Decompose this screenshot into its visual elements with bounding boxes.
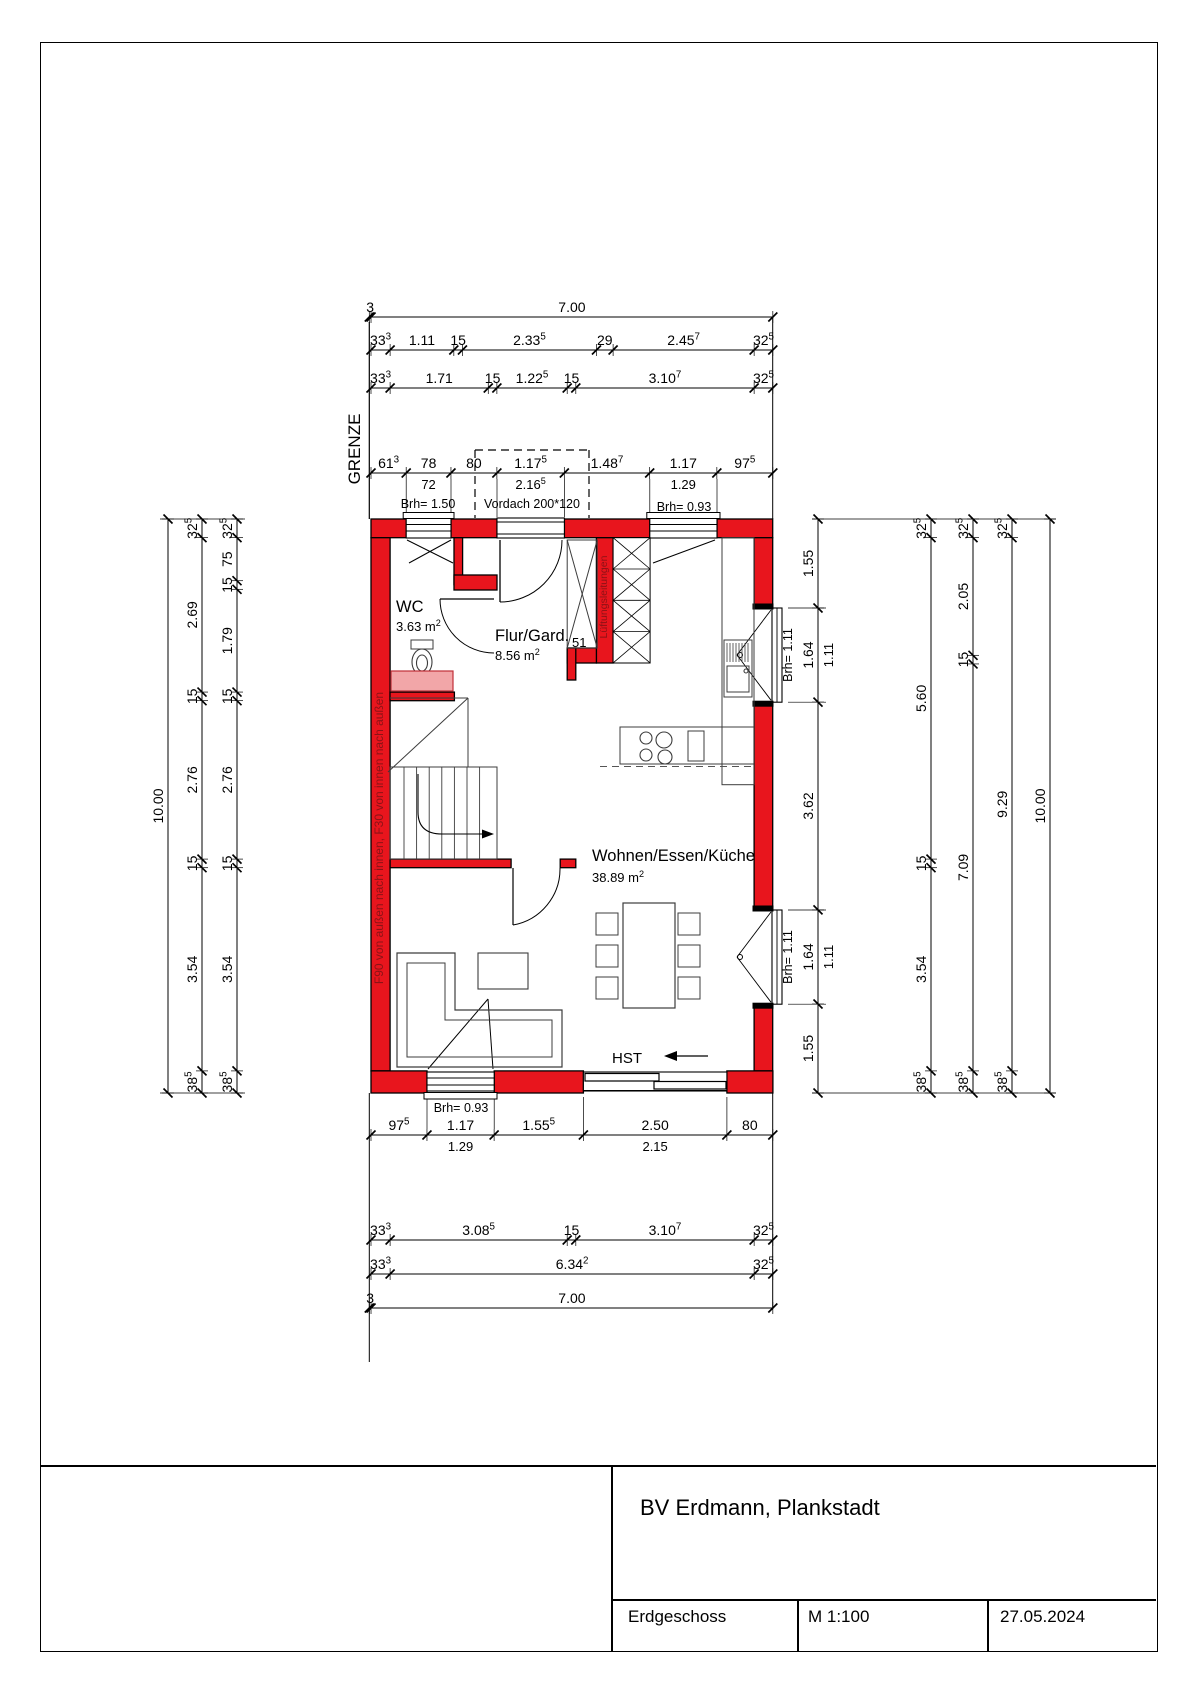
room-label-wohnen: Wohnen/Essen/Küche bbox=[592, 847, 755, 865]
dimension-chain-R4: 3259.29385 bbox=[994, 515, 1018, 1098]
svg-text:15: 15 bbox=[955, 652, 971, 668]
svg-text:385: 385 bbox=[994, 1071, 1010, 1093]
svg-text:3.107: 3.107 bbox=[649, 370, 682, 386]
svg-text:3.54: 3.54 bbox=[913, 955, 929, 982]
svg-text:325: 325 bbox=[184, 517, 200, 539]
svg-text:325: 325 bbox=[753, 332, 775, 348]
svg-text:975: 975 bbox=[734, 455, 756, 471]
room-area-wc: 3.63 m2 bbox=[396, 618, 441, 634]
svg-text:7.00: 7.00 bbox=[558, 1290, 585, 1306]
fire-rating-note: F90 von außen nach innen, F30 von innen … bbox=[372, 692, 386, 984]
title-block-cell-divider-1 bbox=[797, 1599, 799, 1652]
svg-text:385: 385 bbox=[184, 1071, 200, 1093]
svg-text:333: 333 bbox=[370, 1256, 392, 1272]
title-block-top-line bbox=[40, 1465, 1156, 1467]
svg-text:75: 75 bbox=[219, 551, 235, 567]
sill-height-bottom-window: Brh= 0.93 bbox=[434, 1101, 489, 1115]
svg-text:2.15: 2.15 bbox=[642, 1139, 667, 1154]
svg-text:3.54: 3.54 bbox=[219, 955, 235, 982]
svg-text:15: 15 bbox=[219, 577, 235, 593]
svg-text:15: 15 bbox=[450, 332, 466, 348]
svg-text:7.09: 7.09 bbox=[955, 854, 971, 881]
svg-text:1.55: 1.55 bbox=[800, 1035, 816, 1062]
duct-note: Lüftungsleitungen bbox=[598, 555, 610, 638]
svg-text:15: 15 bbox=[219, 688, 235, 704]
svg-text:1.487: 1.487 bbox=[591, 455, 624, 471]
room-label-flur: Flur/Gard. bbox=[495, 627, 569, 645]
svg-text:1.225: 1.225 bbox=[516, 370, 549, 386]
svg-text:3.107: 3.107 bbox=[649, 1222, 682, 1238]
svg-text:1.64: 1.64 bbox=[800, 943, 816, 970]
svg-text:2.05: 2.05 bbox=[955, 583, 971, 610]
svg-text:1.555: 1.555 bbox=[522, 1117, 555, 1133]
dimension-chain-T3: 3331.71151.225153.107325 bbox=[367, 370, 778, 394]
svg-text:333: 333 bbox=[370, 1222, 392, 1238]
svg-text:10.00: 10.00 bbox=[1032, 788, 1048, 823]
room-area-wohnen: 38.89 m2 bbox=[592, 869, 644, 885]
svg-text:1.17: 1.17 bbox=[670, 455, 697, 471]
svg-text:72: 72 bbox=[421, 477, 435, 492]
walls bbox=[371, 519, 773, 1093]
svg-text:975: 975 bbox=[388, 1117, 410, 1133]
dimension-chain-L3: 32575151.79152.76153.54385 bbox=[219, 515, 243, 1098]
room-area-flur: 8.56 m2 bbox=[495, 647, 540, 663]
drawing-scale: M 1:100 bbox=[808, 1607, 869, 1627]
svg-text:5.60: 5.60 bbox=[913, 685, 929, 712]
svg-text:1.79: 1.79 bbox=[219, 627, 235, 654]
sill-height-kitchen-window: Brh= 0.93 bbox=[657, 500, 712, 514]
sill-height-right-lower-window: Brh= 1.11 bbox=[781, 930, 795, 984]
canopy-label: Vordach 200*120 bbox=[484, 497, 580, 511]
svg-text:385: 385 bbox=[955, 1071, 971, 1093]
dimension-chain-T4: 6137872801.1752.1651.4871.171.29975 bbox=[367, 455, 778, 492]
svg-text:1.55: 1.55 bbox=[800, 550, 816, 577]
drawing-date: 27.05.2024 bbox=[1000, 1607, 1085, 1627]
svg-text:15: 15 bbox=[219, 855, 235, 871]
dimension-chain-L1: 10.00 bbox=[150, 515, 174, 1098]
hst-label: HST bbox=[612, 1050, 642, 1067]
floor-plan-drawing: 37.003331.11152.335292.4573253331.71151.… bbox=[0, 0, 1201, 1700]
svg-text:3: 3 bbox=[366, 299, 374, 315]
dimension-chain-B1: 9751.171.291.5552.502.1580 bbox=[367, 1117, 778, 1154]
svg-text:325: 325 bbox=[753, 1256, 775, 1272]
svg-text:80: 80 bbox=[466, 455, 482, 471]
svg-text:1.71: 1.71 bbox=[426, 370, 453, 386]
sheet-name: Erdgeschoss bbox=[628, 1607, 726, 1627]
svg-text:1.11: 1.11 bbox=[821, 945, 836, 969]
svg-text:333: 333 bbox=[370, 332, 392, 348]
svg-text:325: 325 bbox=[753, 370, 775, 386]
svg-text:2.165: 2.165 bbox=[515, 476, 545, 492]
svg-text:385: 385 bbox=[219, 1071, 235, 1093]
dimension-chain-R3: 3252.05157.09385 bbox=[955, 515, 979, 1098]
svg-text:6.342: 6.342 bbox=[556, 1256, 589, 1272]
svg-text:385: 385 bbox=[913, 1071, 929, 1093]
svg-text:78: 78 bbox=[421, 455, 437, 471]
svg-text:325: 325 bbox=[955, 517, 971, 539]
dimension-chain-T1: 37.00 bbox=[365, 299, 778, 323]
windows-and-doors bbox=[403, 513, 782, 1100]
svg-text:29: 29 bbox=[597, 332, 613, 348]
svg-text:15: 15 bbox=[184, 855, 200, 871]
dimension-chain-B4: 37.00 bbox=[365, 1290, 778, 1314]
boundary-label: GRENZE bbox=[345, 414, 364, 485]
sill-height-wc-window: Brh= 1.50 bbox=[401, 497, 456, 511]
svg-text:10.00: 10.00 bbox=[150, 788, 166, 823]
svg-text:1.29: 1.29 bbox=[448, 1139, 473, 1154]
svg-text:2.335: 2.335 bbox=[513, 332, 546, 348]
dimension-chain-B3: 3336.342325 bbox=[367, 1256, 778, 1280]
svg-text:1.11: 1.11 bbox=[409, 332, 435, 348]
svg-text:1.29: 1.29 bbox=[671, 477, 696, 492]
svg-text:2.457: 2.457 bbox=[667, 332, 700, 348]
title-block-cell-divider-2 bbox=[987, 1599, 989, 1652]
drawing-page: 37.003331.11152.335292.4573253331.71151.… bbox=[0, 0, 1201, 1700]
sill-height-right-upper-window: Brh= 1.11 bbox=[781, 628, 795, 682]
svg-text:2.50: 2.50 bbox=[642, 1117, 669, 1133]
svg-text:333: 333 bbox=[370, 370, 392, 386]
svg-text:3.62: 3.62 bbox=[800, 792, 816, 819]
title-block-row-line bbox=[611, 1599, 1156, 1601]
svg-text:80: 80 bbox=[742, 1117, 758, 1133]
wardrobe-width: 51 bbox=[572, 635, 586, 650]
svg-text:3: 3 bbox=[366, 1290, 374, 1306]
svg-text:7.00: 7.00 bbox=[558, 299, 585, 315]
room-label-wc: WC bbox=[396, 598, 424, 616]
svg-text:3.085: 3.085 bbox=[462, 1222, 495, 1238]
dimension-chain-R2: 3255.60153.54385 bbox=[913, 515, 937, 1098]
property-boundary-line bbox=[369, 317, 772, 1362]
svg-text:325: 325 bbox=[219, 517, 235, 539]
svg-text:325: 325 bbox=[994, 517, 1010, 539]
svg-text:15: 15 bbox=[564, 1222, 580, 1238]
hst-arrow bbox=[664, 1051, 708, 1061]
svg-text:325: 325 bbox=[753, 1222, 775, 1238]
svg-text:1.175: 1.175 bbox=[514, 455, 547, 471]
dimension-chain-L2: 3252.69152.76153.54385 bbox=[184, 515, 208, 1098]
svg-text:15: 15 bbox=[184, 688, 200, 704]
svg-text:15: 15 bbox=[564, 370, 580, 386]
svg-text:9.29: 9.29 bbox=[994, 790, 1010, 817]
svg-text:3.54: 3.54 bbox=[184, 955, 200, 982]
title-block-divider bbox=[611, 1465, 613, 1652]
svg-text:15: 15 bbox=[913, 855, 929, 871]
dimension-chain-R5: 10.00 bbox=[1032, 515, 1056, 1098]
svg-text:2.76: 2.76 bbox=[184, 766, 200, 793]
svg-text:613: 613 bbox=[378, 455, 400, 471]
dimension-chain-B2: 3333.085153.107325 bbox=[367, 1222, 778, 1246]
svg-text:1.64: 1.64 bbox=[800, 641, 816, 668]
svg-text:325: 325 bbox=[913, 517, 929, 539]
dimension-chain-T2: 3331.11152.335292.457325 bbox=[367, 332, 778, 356]
project-title: BV Erdmann, Plankstadt bbox=[640, 1495, 880, 1521]
svg-text:1.11: 1.11 bbox=[821, 643, 836, 667]
svg-text:1.17: 1.17 bbox=[447, 1117, 474, 1133]
svg-text:2.76: 2.76 bbox=[219, 766, 235, 793]
svg-text:2.69: 2.69 bbox=[184, 601, 200, 628]
svg-text:15: 15 bbox=[485, 370, 501, 386]
dimension-chain-R1: 1.551.641.113.621.641.111.55 bbox=[800, 515, 836, 1098]
